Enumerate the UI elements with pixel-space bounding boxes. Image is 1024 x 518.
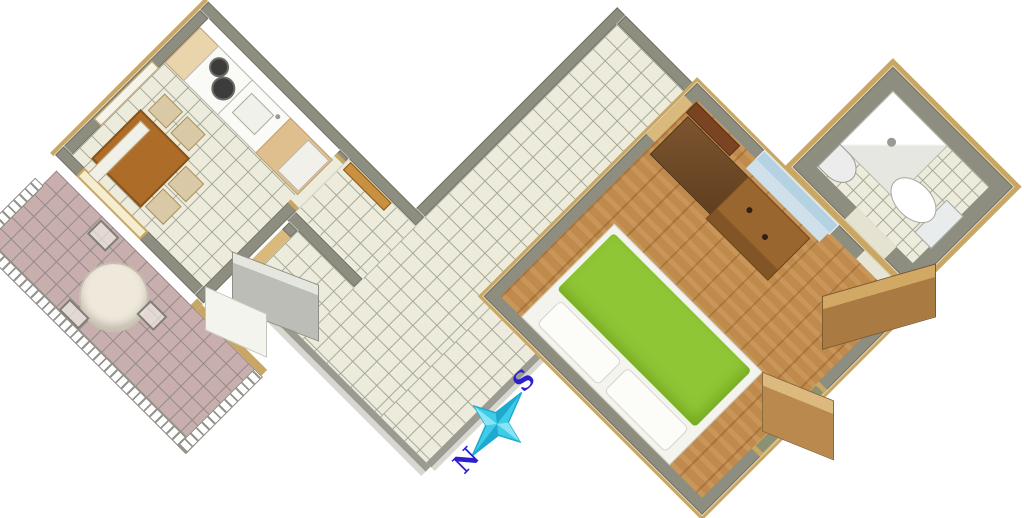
compass-rose: S N [435, 362, 565, 492]
compass-star-icon [435, 362, 565, 492]
floor-plan-canvas: S N [0, 0, 1024, 518]
